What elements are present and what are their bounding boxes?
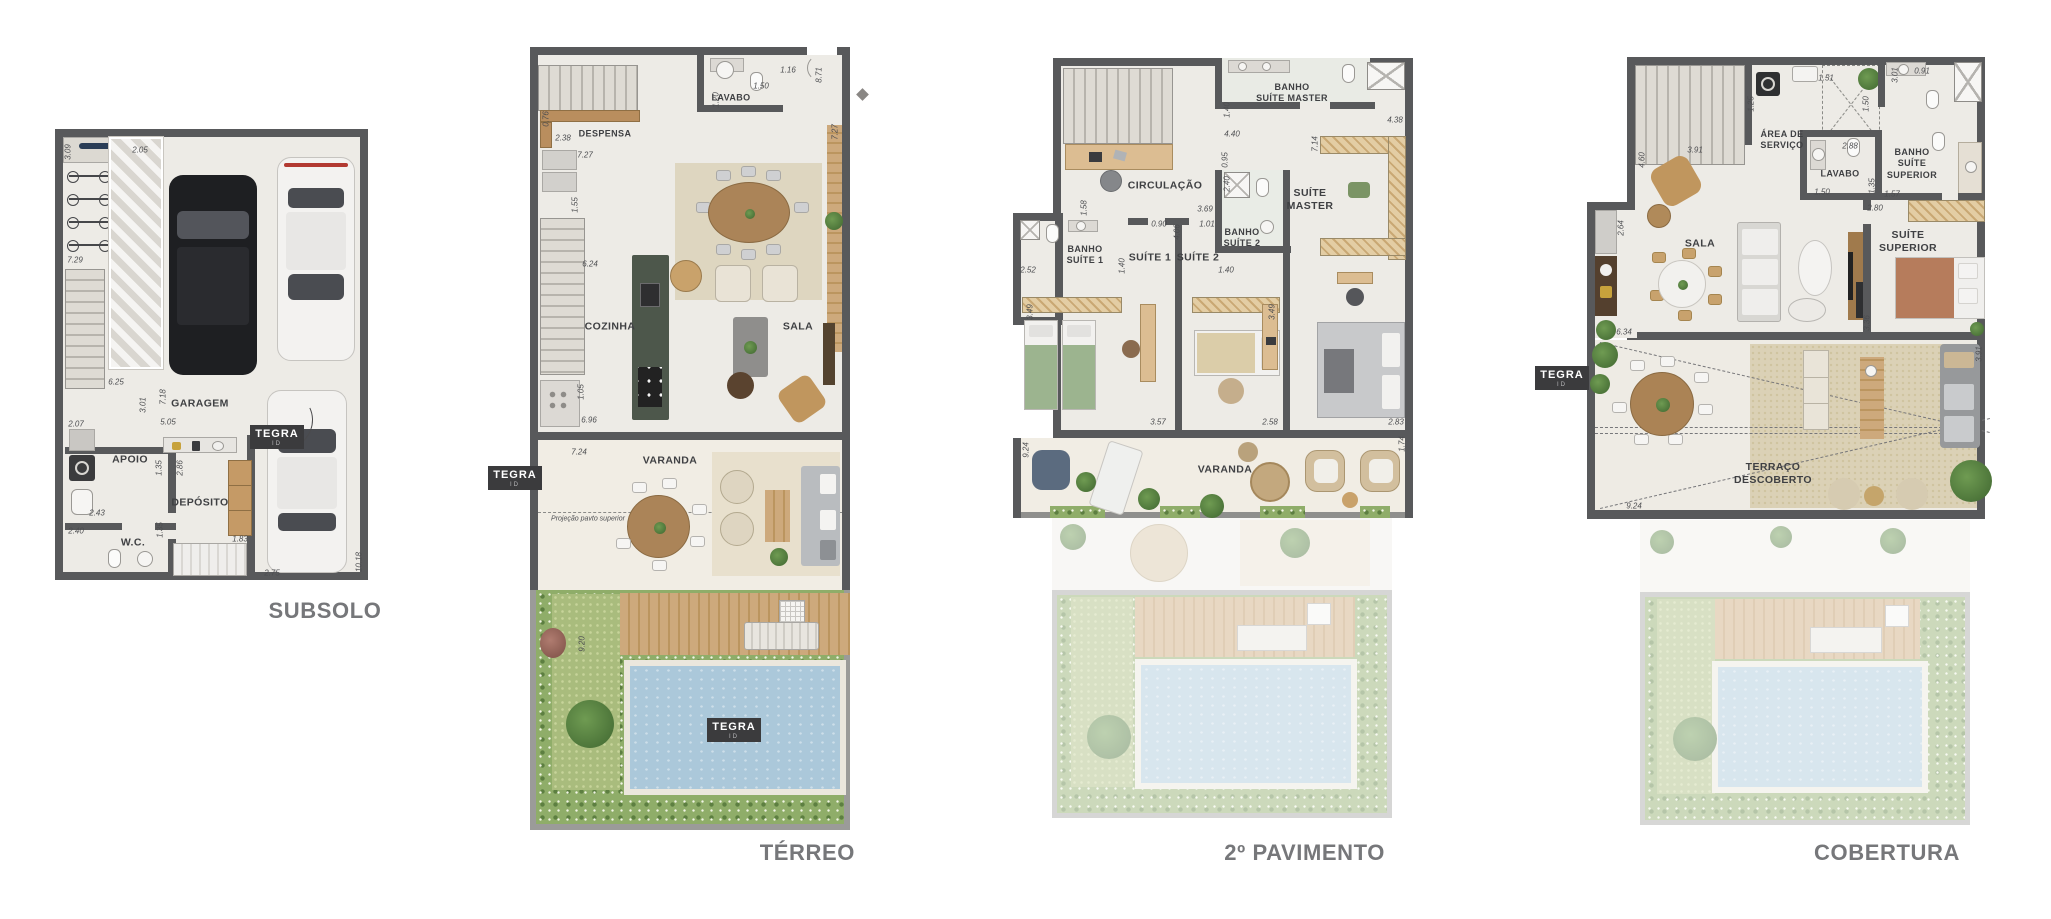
wall — [530, 440, 538, 590]
armchair — [715, 265, 751, 302]
dim-label: 2.38 — [555, 134, 571, 143]
dim-label: 1.74 — [1398, 436, 1407, 452]
plant-icon — [1596, 320, 1616, 340]
chair — [616, 538, 631, 549]
desk — [1140, 304, 1156, 382]
dim-label: 4.40 — [1224, 130, 1240, 139]
dim-label: 7.29 — [67, 256, 83, 265]
sofa-cushion — [1742, 259, 1778, 285]
dim-label: 1.40 — [1218, 266, 1234, 275]
outdoor-sofa — [801, 466, 840, 566]
dim-label: 6.34 — [1616, 328, 1632, 337]
vanity — [1958, 142, 1982, 194]
egg-chair — [1798, 240, 1832, 296]
logo-brand: TEGRA — [488, 470, 542, 481]
projection-note: Projeção pavto superior — [551, 516, 625, 523]
chair — [1708, 294, 1722, 305]
appliance-icon — [1600, 286, 1612, 298]
sofa-cushion — [1742, 289, 1778, 315]
dim-label: 2.43 — [89, 509, 105, 518]
sink-icon — [1262, 62, 1271, 71]
desk-chair — [1100, 170, 1122, 192]
dim-label: 1.25 — [1747, 96, 1756, 112]
tv-panel — [823, 323, 835, 385]
dim-label: 2.58 — [1262, 418, 1278, 427]
ghost-plant — [1650, 530, 1674, 554]
room-label-suite-superior: SUÍTE SUPERIOR — [1879, 229, 1937, 255]
car-rear-window — [288, 188, 344, 208]
wall — [1800, 193, 1882, 200]
sink-icon — [716, 61, 734, 79]
chair — [662, 478, 677, 489]
entry-door-gap — [807, 47, 837, 55]
dim-label: 2.75 — [264, 569, 280, 578]
chair — [716, 244, 731, 255]
chair — [1630, 360, 1645, 371]
ghost-table — [1130, 524, 1188, 582]
dim-label: 5.05 — [160, 418, 176, 427]
plant-icon — [1858, 68, 1880, 90]
dim-label: 1.16 — [780, 66, 796, 75]
dim-label: 7.24 — [571, 448, 587, 457]
chair — [1660, 356, 1675, 367]
dim-label: 9.20 — [578, 636, 587, 652]
car-windshield — [288, 274, 344, 300]
plant-icon — [1138, 488, 1160, 510]
dim-label: 1.50 — [753, 82, 769, 91]
chair — [632, 482, 647, 493]
ghost-palm — [1087, 715, 1131, 759]
bbq-item — [1865, 365, 1877, 377]
sofa-cushion — [820, 510, 836, 530]
dim-label: 1.40 — [1118, 258, 1127, 274]
logo-brand: TEGRA — [250, 429, 304, 440]
washer-door — [75, 461, 89, 475]
dining-table-round — [1658, 260, 1706, 308]
room-label-despensa: DESPENSA — [579, 128, 632, 139]
bicycle-icon — [69, 175, 109, 177]
room-label-banho-master: BANHO SUÍTE MASTER — [1256, 82, 1328, 105]
blanket — [1025, 345, 1057, 409]
dim-label: 7.18 — [159, 389, 168, 405]
dim-label: 9.24 — [1626, 502, 1642, 511]
chair — [1698, 404, 1713, 415]
wall — [1587, 202, 1595, 348]
wall — [1878, 57, 1885, 107]
slat-table — [765, 490, 790, 542]
pillow — [1382, 375, 1400, 409]
dim-label: 0.95 — [1221, 152, 1230, 168]
stove-icon — [638, 367, 662, 407]
lawn — [552, 594, 620, 790]
floor-title-terreo: TÉRREO — [690, 840, 855, 866]
room-label-suite-master: SUÍTE MASTER — [1287, 187, 1334, 213]
lounge-chair — [720, 470, 754, 504]
kitchen-counter — [540, 380, 580, 427]
stairs — [65, 269, 105, 389]
plan-cobertura: TEGRAID ÁREA DE SERVIÇO LAVABO BANHO SUÍ… — [1560, 42, 2000, 832]
sink-icon — [1076, 221, 1086, 231]
pouf — [1238, 442, 1258, 462]
fridge-icon — [542, 172, 577, 192]
flower-bush — [540, 628, 566, 658]
dim-label: 3.91 — [1975, 346, 1984, 362]
dim-label: 3.49 — [1026, 304, 1035, 320]
wicker-chair — [1250, 462, 1290, 502]
coffee-table — [733, 317, 768, 377]
closet-box — [1954, 62, 1982, 102]
cushion — [1369, 459, 1393, 483]
logo-sub: ID — [707, 734, 761, 740]
room-label-garagem: GARAGEM — [171, 397, 229, 410]
pouf — [1828, 478, 1860, 510]
shelf-divider — [1804, 377, 1828, 378]
room-label-lavabo: LAVABO — [1820, 168, 1859, 179]
palm-icon — [1950, 460, 1992, 502]
toilet-icon — [1046, 224, 1059, 243]
double-sink-icon — [640, 283, 660, 307]
car-roof — [286, 212, 346, 270]
side-table — [670, 260, 702, 292]
outdoor-table — [627, 495, 690, 558]
sofa-cushion — [1944, 352, 1974, 368]
planter — [1360, 506, 1390, 518]
dim-label: 9.24 — [1022, 442, 1031, 458]
wardrobe — [1320, 238, 1406, 256]
suv-roof — [177, 247, 249, 325]
garden-strip — [827, 125, 842, 352]
desk-chair — [1122, 340, 1140, 358]
lounge-chair — [720, 512, 754, 546]
dim-label: 1.58 — [1080, 200, 1089, 216]
lounge-chair — [1032, 450, 1070, 490]
room-label-sala: SALA — [1685, 237, 1715, 250]
dim-label: 3.91 — [1687, 146, 1703, 155]
desk-chair — [1346, 288, 1364, 306]
dim-label: 1.57 — [1884, 190, 1900, 199]
jute-rug — [1218, 378, 1244, 404]
wardrobe — [1022, 297, 1122, 313]
plan-subsolo: GARAGEM APOIO DEPÓSITO W.C. TEGRAID 3.09… — [45, 99, 375, 599]
sofa — [1737, 222, 1781, 322]
car-roof — [277, 457, 337, 509]
pantry-shelf — [540, 110, 640, 122]
outdoor-table — [1630, 372, 1694, 436]
plant-icon — [744, 341, 757, 354]
bicycle-icon — [69, 221, 109, 223]
room-label-terraco: TERRAÇO DESCOBERTO — [1734, 461, 1812, 487]
dim-label: 4.38 — [1387, 116, 1403, 125]
sink-icon — [1812, 148, 1825, 161]
cooktop-icon — [547, 389, 569, 411]
ghost-shower — [1885, 605, 1909, 627]
blanket — [1063, 345, 1095, 409]
armchair — [762, 265, 798, 302]
dim-label: 1.05 — [577, 384, 586, 400]
dim-label: 1.50 — [1862, 96, 1871, 112]
sofa-cushion — [1944, 384, 1974, 410]
desk — [1065, 144, 1173, 170]
monitor-icon — [1266, 337, 1276, 345]
dim-label: 1.35 — [155, 460, 164, 476]
ghost-floor-below — [1640, 520, 1970, 830]
dim-label: 0.90 — [1151, 220, 1167, 229]
plant-icon — [1076, 472, 1096, 492]
chair — [692, 504, 707, 515]
wall — [1958, 193, 1985, 200]
suv-black — [169, 175, 257, 375]
dim-label: 2.40 — [1223, 176, 1232, 192]
chair — [766, 170, 781, 181]
suv-windshield — [177, 211, 249, 239]
blanket — [1896, 258, 1954, 318]
room-label-area-servico: ÁREA DE SERVIÇO — [1760, 129, 1803, 152]
dim-label: 2.40 — [68, 527, 84, 536]
fridge-icon — [542, 150, 577, 170]
dim-label: 7.27 — [577, 151, 593, 160]
washer-icon — [1756, 72, 1780, 96]
room-label-suite1: SUÍTE 1 — [1129, 251, 1171, 264]
dim-label: 0.76 — [542, 111, 551, 127]
toilet-icon — [1342, 64, 1355, 83]
dim-label: 7.14 — [1311, 136, 1320, 152]
ghost-plant — [1060, 524, 1086, 550]
twin-bed — [1024, 320, 1058, 410]
dim-label: 2.83 — [1388, 418, 1404, 427]
toilet-icon — [1256, 178, 1269, 197]
pillow — [1958, 263, 1978, 279]
ghost-plant — [1770, 526, 1792, 548]
wall — [1013, 438, 1021, 518]
dim-label: 1.83 — [232, 535, 248, 544]
logo-sub: ID — [250, 441, 304, 447]
sink-icon — [137, 551, 153, 567]
dim-label: 3.49 — [1268, 304, 1277, 320]
plant-icon — [1592, 342, 1618, 368]
dim-label: 3.09 — [64, 144, 73, 160]
shelf-divider — [1804, 403, 1828, 404]
shelf-divider — [229, 485, 251, 486]
tegra-id-logo: TEGRAID — [488, 466, 542, 490]
floor-title-2-pavimento: 2º PAVIMENTO — [1175, 840, 1385, 866]
ghost-floor-below — [1030, 518, 1406, 830]
dim-label: 0.91 — [1914, 67, 1930, 76]
room-label-banho1: BANHO SUÍTE 1 — [1067, 244, 1104, 267]
wall — [1800, 130, 1882, 137]
palm-icon — [566, 700, 614, 748]
room-label-deposito: DEPÓSITO — [171, 496, 228, 509]
wall — [1128, 218, 1148, 225]
planter — [1260, 506, 1305, 518]
centerpiece-plant — [1678, 280, 1688, 290]
floorplan-sheet: GARAGEM APOIO DEPÓSITO W.C. TEGRAID 3.09… — [0, 0, 2051, 919]
shelving — [228, 460, 252, 536]
dim-label: 1.51 — [1818, 74, 1834, 83]
bench — [173, 543, 247, 576]
chair — [1634, 434, 1649, 445]
chair — [1708, 266, 1722, 277]
side-table — [1342, 492, 1358, 508]
garden: TEGRAID 9.20 — [530, 590, 850, 830]
chair — [741, 166, 756, 177]
wall — [1215, 170, 1222, 252]
chair — [766, 244, 781, 255]
wall — [1587, 510, 1985, 519]
chair — [716, 170, 731, 181]
dim-label: 1.20 — [712, 92, 721, 108]
sofa-cushion — [1742, 229, 1778, 255]
rattan-chair — [1360, 450, 1400, 492]
room-label-circulacao: CIRCULAÇÃO — [1128, 179, 1203, 192]
ghost-lawn — [1071, 597, 1133, 787]
dim-label: 3.01 — [1891, 67, 1900, 83]
ghost-lounger — [1810, 627, 1882, 653]
dim-label: 2.64 — [1617, 220, 1626, 236]
chair — [652, 560, 667, 571]
dim-label: 4.60 — [1638, 152, 1647, 168]
ghost-shower — [1307, 603, 1331, 625]
kitchenette-counter — [1595, 210, 1617, 254]
desk — [1337, 272, 1373, 284]
book-icon — [1113, 150, 1127, 162]
double-bed — [1317, 322, 1405, 418]
plant-icon — [1200, 494, 1224, 518]
pool: TEGRAID — [624, 660, 846, 795]
closet-box — [1020, 220, 1040, 240]
room-label-banho2: BANHO SUÍTE 2 — [1224, 227, 1261, 250]
dim-label: 3.69 — [1197, 205, 1213, 214]
ghost-lounger — [1237, 625, 1307, 651]
washer-icon — [69, 455, 95, 481]
tool-icon — [172, 442, 181, 450]
throw-blanket — [1324, 349, 1354, 393]
tegra-id-logo: TEGRAID — [707, 718, 761, 742]
tool-icon — [192, 441, 200, 451]
stairs — [540, 218, 585, 375]
blanket — [1197, 333, 1255, 373]
pillow — [1382, 333, 1400, 367]
plant-icon — [825, 212, 843, 230]
dim-label: 1.40 — [1223, 102, 1232, 118]
logo-brand: TEGRA — [707, 722, 761, 733]
rattan-chair — [1305, 450, 1345, 492]
workbench — [163, 437, 237, 453]
wall — [1330, 102, 1375, 109]
wall — [697, 55, 704, 112]
floor-title-cobertura: COBERTURA — [1750, 840, 1960, 866]
tegra-id-logo: TEGRAID — [1535, 366, 1589, 390]
dim-label: 2.86 — [176, 460, 185, 476]
pouf — [1896, 478, 1928, 510]
ghost-lawn — [1657, 599, 1715, 794]
room-label-suite2: SUÍTE 2 — [1177, 251, 1219, 264]
sink-icon — [1238, 62, 1247, 71]
ghost-pool — [1135, 659, 1357, 789]
dim-label: 6.25 — [108, 378, 124, 387]
ghost-pool — [1712, 661, 1928, 793]
ghost-garden — [1052, 590, 1392, 818]
pillow — [1958, 288, 1978, 304]
stairs — [1063, 68, 1173, 144]
sofa-cushion — [820, 540, 836, 560]
plant-icon — [770, 548, 788, 566]
tv-icon — [1848, 252, 1853, 300]
room-label-wc: W.C. — [121, 536, 145, 549]
ghost-plant — [1280, 528, 1310, 558]
mirror — [69, 429, 95, 451]
floor-title-subsolo: SUBSOLO — [240, 598, 410, 624]
kitchenette-cabinet — [1595, 256, 1617, 316]
logo-sub: ID — [1535, 382, 1589, 388]
side-table — [1647, 204, 1671, 228]
wardrobe — [1908, 200, 1985, 222]
centerpiece-plant — [745, 209, 755, 219]
room-label-varanda: VARANDA — [1198, 463, 1253, 476]
logo-sub: ID — [488, 482, 542, 488]
dining-table — [708, 182, 790, 243]
dim-label: 1.01 — [1199, 220, 1215, 229]
coffee-table-oval — [1788, 298, 1826, 322]
chair — [1652, 252, 1666, 263]
chair — [1668, 434, 1683, 445]
tv-icon — [1856, 282, 1863, 318]
room-label-banho-superior: BANHO SUÍTE SUPERIOR — [1887, 147, 1937, 181]
washer-door — [1761, 77, 1775, 91]
outdoor-shower — [779, 600, 805, 624]
wall — [842, 440, 850, 590]
shower-box — [1367, 62, 1405, 90]
chair — [690, 536, 705, 547]
ghost-garden — [1640, 592, 1970, 825]
dim-label: 2.05 — [132, 146, 148, 155]
toilet-icon — [108, 549, 121, 568]
tegra-id-logo: TEGRAID — [250, 425, 304, 449]
dim-label: 10.18 — [355, 552, 364, 572]
pillow — [1067, 325, 1091, 337]
dim-label: 1.55 — [571, 197, 580, 213]
dim-label: 3.36 — [1863, 315, 1872, 331]
dim-label: 6.96 — [581, 416, 597, 425]
centerpiece-plant — [654, 522, 666, 534]
ghost-terrace — [1640, 520, 1970, 592]
ghost-palm — [1673, 717, 1717, 761]
logo-brand: TEGRA — [1535, 370, 1589, 381]
plant-icon — [1970, 322, 1984, 336]
chair — [741, 249, 756, 260]
dim-label: 1.35 — [1868, 178, 1877, 194]
pillow — [1029, 325, 1053, 337]
stairs — [538, 65, 638, 111]
dim-label: 3.01 — [139, 397, 148, 413]
plant-icon — [1590, 374, 1610, 394]
dim-label: 8.71 — [815, 67, 824, 83]
chair — [794, 202, 809, 213]
dim-label: 1.35 — [156, 522, 165, 538]
shelf-unit — [1803, 350, 1829, 430]
room-label-cozinha: COZINHA — [585, 320, 636, 333]
cushion — [1314, 459, 1338, 483]
dim-label: 1.50 — [1814, 188, 1830, 197]
laundry-sink — [1792, 66, 1818, 82]
bicycle-icon — [69, 198, 109, 200]
chair — [1694, 372, 1709, 383]
dim-label: 6.24 — [582, 260, 598, 269]
car-rear-window — [278, 513, 336, 531]
shelf-divider — [229, 510, 251, 511]
dim-label: 7.27 — [831, 124, 840, 140]
chair — [1678, 310, 1692, 321]
centerpiece-plant — [1656, 398, 1670, 412]
